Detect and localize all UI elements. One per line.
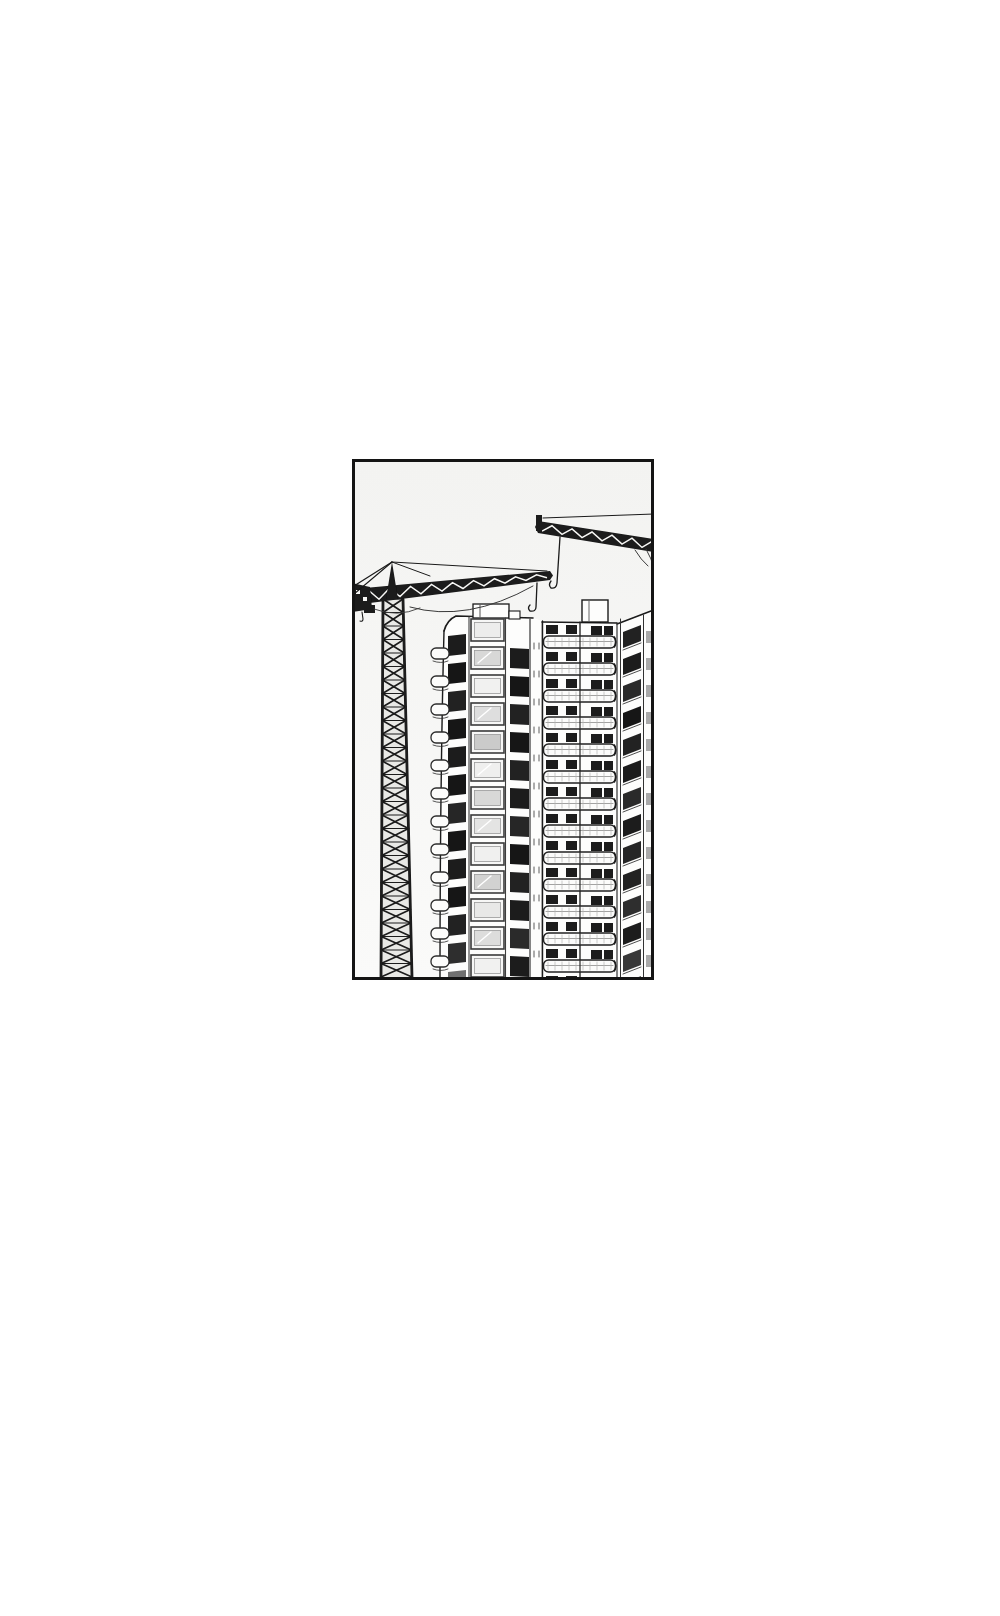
dark-window bbox=[510, 956, 529, 977]
dark-window bbox=[591, 680, 602, 689]
manga-panel-frame bbox=[352, 459, 654, 980]
jib-tip-mount bbox=[536, 515, 542, 531]
rooftop-structure-left bbox=[473, 604, 509, 618]
dark-window bbox=[604, 626, 613, 635]
dark-window bbox=[566, 625, 577, 634]
dark-window bbox=[604, 734, 613, 743]
dark-window bbox=[591, 815, 602, 824]
dark-window bbox=[448, 662, 466, 684]
dark-window bbox=[591, 626, 602, 635]
dark-window bbox=[448, 746, 466, 768]
edge-window-sliver bbox=[646, 712, 651, 724]
edge-window-sliver bbox=[646, 955, 651, 967]
dark-window bbox=[510, 732, 529, 753]
dark-window bbox=[591, 950, 602, 959]
dark-window bbox=[448, 858, 466, 880]
balcony-sill bbox=[431, 928, 449, 939]
edge-window-sliver bbox=[646, 928, 651, 940]
balcony-sill bbox=[431, 956, 449, 967]
dark-window bbox=[546, 841, 558, 850]
dark-window bbox=[546, 787, 558, 796]
dark-window bbox=[448, 830, 466, 852]
edge-window-sliver bbox=[646, 658, 651, 670]
dark-window bbox=[510, 760, 529, 781]
dark-window bbox=[566, 787, 577, 796]
balcony-sill bbox=[431, 844, 449, 855]
dark-window bbox=[604, 842, 613, 851]
dark-window bbox=[448, 802, 466, 824]
edge-window-sliver bbox=[646, 874, 651, 886]
dark-window bbox=[566, 895, 577, 904]
apartment-tower-right bbox=[542, 600, 651, 980]
dark-window bbox=[566, 949, 577, 958]
apartment-tower-left bbox=[431, 604, 543, 980]
balcony-sill bbox=[431, 760, 449, 771]
dark-window bbox=[546, 652, 558, 661]
edge-window-sliver bbox=[646, 739, 651, 751]
dark-window bbox=[591, 896, 602, 905]
balcony-sill bbox=[431, 788, 449, 799]
dark-window bbox=[604, 950, 613, 959]
dark-window bbox=[604, 896, 613, 905]
dark-window bbox=[604, 815, 613, 824]
dark-window bbox=[604, 923, 613, 932]
edge-window-sliver bbox=[646, 766, 651, 778]
dark-window bbox=[510, 648, 529, 669]
dark-window bbox=[604, 680, 613, 689]
construction-scene-illustration bbox=[352, 459, 654, 980]
dark-window bbox=[566, 679, 577, 688]
panel-artwork bbox=[352, 459, 654, 980]
dark-window bbox=[510, 900, 529, 921]
dark-window bbox=[591, 761, 602, 770]
dark-window bbox=[566, 868, 577, 877]
dark-window bbox=[448, 690, 466, 712]
dark-window bbox=[604, 653, 613, 662]
balcony-sill bbox=[431, 676, 449, 687]
balcony-sill bbox=[431, 648, 449, 659]
dark-window bbox=[604, 788, 613, 797]
rooftop-structure-right bbox=[582, 600, 608, 622]
balcony-sill bbox=[431, 732, 449, 743]
dark-window bbox=[591, 707, 602, 716]
dark-window bbox=[566, 733, 577, 742]
dark-window bbox=[546, 679, 558, 688]
dark-window bbox=[510, 872, 529, 893]
dark-window bbox=[510, 788, 529, 809]
edge-window-sliver bbox=[646, 793, 651, 805]
dark-window bbox=[448, 914, 466, 936]
balcony-sill bbox=[431, 704, 449, 715]
dark-window bbox=[566, 706, 577, 715]
edge-window-sliver bbox=[646, 847, 651, 859]
dark-window bbox=[566, 760, 577, 769]
dark-window bbox=[448, 634, 466, 656]
dark-window bbox=[510, 676, 529, 697]
dark-window bbox=[566, 922, 577, 931]
page-background bbox=[0, 0, 1000, 1616]
dark-window bbox=[546, 706, 558, 715]
edge-window-sliver bbox=[646, 820, 651, 832]
dark-window bbox=[546, 814, 558, 823]
balcony-sill bbox=[431, 900, 449, 911]
edge-window-sliver bbox=[646, 685, 651, 697]
balcony-sill bbox=[431, 872, 449, 883]
dark-window bbox=[510, 816, 529, 837]
dark-window bbox=[546, 868, 558, 877]
dark-window bbox=[591, 653, 602, 662]
dark-window bbox=[546, 895, 558, 904]
dark-window bbox=[448, 718, 466, 740]
dark-window bbox=[591, 923, 602, 932]
dark-window bbox=[510, 704, 529, 725]
dark-window bbox=[510, 844, 529, 865]
dark-window bbox=[591, 869, 602, 878]
edge-window-sliver bbox=[646, 901, 651, 913]
dark-window bbox=[591, 734, 602, 743]
dark-window bbox=[546, 733, 558, 742]
dark-window bbox=[448, 774, 466, 796]
dark-window bbox=[448, 886, 466, 908]
dark-window bbox=[546, 625, 558, 634]
edge-window-sliver bbox=[646, 631, 651, 643]
dark-window bbox=[566, 814, 577, 823]
dark-window bbox=[566, 841, 577, 850]
dark-window bbox=[604, 707, 613, 716]
dark-window bbox=[591, 842, 602, 851]
dark-window bbox=[546, 949, 558, 958]
dark-window bbox=[546, 922, 558, 931]
dark-window bbox=[604, 869, 613, 878]
dark-window bbox=[546, 760, 558, 769]
balcony-sill bbox=[431, 816, 449, 827]
dark-window bbox=[448, 942, 466, 964]
dark-window bbox=[591, 788, 602, 797]
dark-window bbox=[566, 652, 577, 661]
dark-window bbox=[604, 761, 613, 770]
dark-window bbox=[510, 928, 529, 949]
